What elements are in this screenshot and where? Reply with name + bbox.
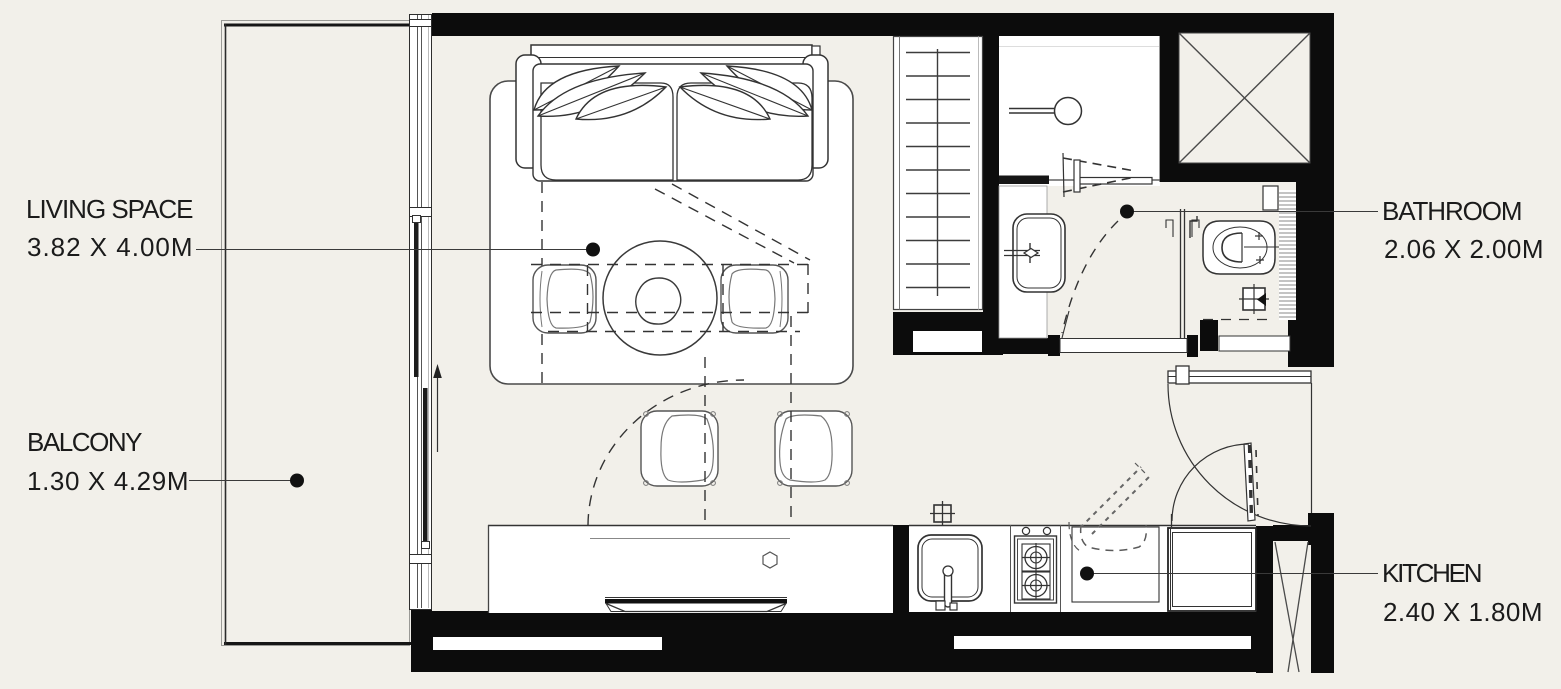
svg-text:LIVING SPACE: LIVING SPACE <box>26 194 194 224</box>
svg-text:1.30 X 4.29M: 1.30 X 4.29M <box>27 466 189 496</box>
svg-text:BATHROOM: BATHROOM <box>1382 196 1523 226</box>
svg-text:2.40 X 1.80M: 2.40 X 1.80M <box>1383 597 1543 627</box>
svg-text:KITCHEN: KITCHEN <box>1382 558 1483 588</box>
svg-text:3.82 X 4.00M: 3.82 X 4.00M <box>27 232 193 262</box>
svg-text:BALCONY: BALCONY <box>27 427 143 457</box>
svg-text:2.06 X 2.00M: 2.06 X 2.00M <box>1384 234 1544 264</box>
